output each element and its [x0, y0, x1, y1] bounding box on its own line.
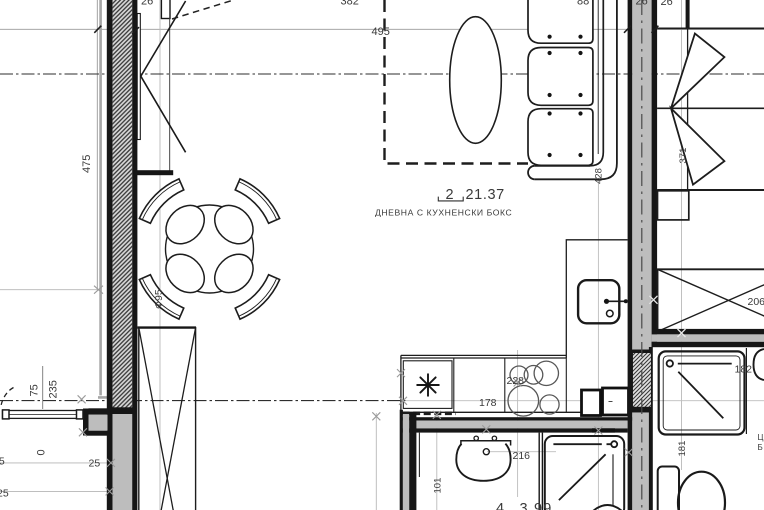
svg-text:21.37: 21.37 [466, 187, 505, 203]
svg-text:101: 101 [433, 478, 444, 494]
svg-text:228: 228 [507, 375, 525, 387]
svg-text:382: 382 [341, 0, 359, 8]
svg-text:0: 0 [36, 449, 48, 455]
svg-text:Ц: Ц [758, 433, 764, 442]
svg-text:88: 88 [577, 0, 589, 8]
svg-text:4: 4 [496, 501, 504, 510]
svg-text:3.99: 3.99 [520, 501, 553, 510]
svg-text:181: 181 [677, 441, 688, 457]
svg-text:25: 25 [89, 458, 101, 470]
svg-text:206: 206 [748, 296, 764, 308]
svg-text:ДНЕВНА С КУХНЕНСКИ БОКС: ДНЕВНА С КУХНЕНСКИ БОКС [375, 208, 512, 218]
svg-text:178: 178 [479, 397, 497, 409]
svg-text:235: 235 [48, 380, 60, 398]
svg-text:475: 475 [81, 155, 93, 173]
svg-text:Б: Б [758, 443, 763, 452]
svg-text:182: 182 [735, 364, 753, 376]
svg-text:428: 428 [594, 168, 605, 184]
svg-text:371: 371 [678, 148, 689, 164]
svg-text:26: 26 [661, 0, 673, 8]
svg-text:495: 495 [372, 26, 390, 38]
svg-text:75: 75 [29, 384, 41, 396]
svg-text:Ф95: Ф95 [153, 289, 165, 309]
svg-text:25: 25 [0, 488, 9, 500]
svg-text:26: 26 [141, 0, 153, 8]
svg-text:26: 26 [636, 0, 648, 8]
svg-text:25: 25 [0, 456, 5, 468]
svg-text:216: 216 [513, 450, 531, 462]
